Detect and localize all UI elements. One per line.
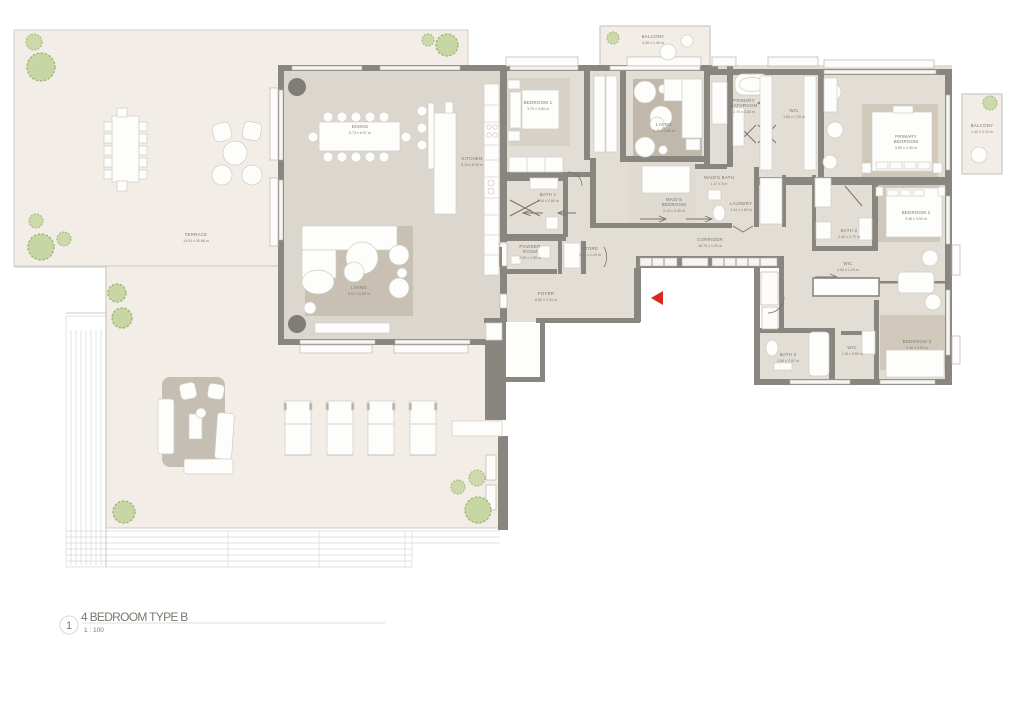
svg-text:STORE: STORE xyxy=(582,246,598,251)
svg-text:BALCONY: BALCONY xyxy=(642,34,665,39)
svg-text:WIC: WIC xyxy=(789,108,798,113)
svg-text:WIC: WIC xyxy=(843,261,852,266)
svg-text:TERRACE: TERRACE xyxy=(185,232,208,237)
svg-text:LIVING: LIVING xyxy=(656,122,672,127)
svg-text:3.60 x 1.24 m: 3.60 x 1.24 m xyxy=(837,268,859,272)
svg-text:1 : 100: 1 : 100 xyxy=(84,627,104,634)
svg-text:ROOM: ROOM xyxy=(523,249,538,254)
svg-text:5.50 x 4.40 m: 5.50 x 4.40 m xyxy=(895,146,917,150)
svg-text:BATH 2: BATH 2 xyxy=(841,228,858,233)
svg-text:KITCHEN: KITCHEN xyxy=(461,156,482,161)
svg-text:2.84 x 2.62 m: 2.84 x 2.62 m xyxy=(777,359,799,363)
svg-text:WIC: WIC xyxy=(847,345,856,350)
svg-text:4 BEDROOM TYPE B: 4 BEDROOM TYPE B xyxy=(81,610,188,624)
svg-text:3.70 x 3.50 m: 3.70 x 3.50 m xyxy=(527,107,549,111)
svg-text:LAUNDRY: LAUNDRY xyxy=(730,201,753,206)
svg-text:DINING: DINING xyxy=(352,124,369,129)
svg-text:1.47 x 3 m: 1.47 x 3 m xyxy=(711,182,728,186)
svg-text:1.15 x 3.80 m: 1.15 x 3.80 m xyxy=(841,352,863,356)
svg-text:2.70 x 3.80 m: 2.70 x 3.80 m xyxy=(733,110,755,114)
svg-text:4.29 x 3.80 m: 4.29 x 3.80 m xyxy=(653,129,675,133)
svg-text:2.46 x 2.70 m: 2.46 x 2.70 m xyxy=(838,235,860,239)
svg-text:2.35 x 1.80 m: 2.35 x 1.80 m xyxy=(519,256,541,260)
svg-text:BEDROOM: BEDROOM xyxy=(662,202,687,207)
svg-text:LIVING: LIVING xyxy=(351,285,367,290)
svg-text:4.06 x 1.45 m: 4.06 x 1.45 m xyxy=(642,41,664,45)
svg-text:14.91 x 20.66 m: 14.91 x 20.66 m xyxy=(183,239,209,243)
svg-text:16.79 x 1.20 m: 16.79 x 1.20 m xyxy=(698,244,722,248)
svg-text:1.66 x 1.20 m: 1.66 x 1.20 m xyxy=(579,253,601,257)
svg-text:2.13 x 3.35 m: 2.13 x 3.35 m xyxy=(663,209,685,213)
svg-text:FOYER: FOYER xyxy=(538,291,554,296)
svg-text:BATHROOM: BATHROOM xyxy=(730,103,757,108)
svg-text:MAID'S BATH: MAID'S BATH xyxy=(704,175,734,180)
svg-text:1.34 x 1.80 m: 1.34 x 1.80 m xyxy=(730,208,752,212)
svg-text:3.74 x 8.35 m: 3.74 x 8.35 m xyxy=(461,163,483,167)
svg-text:5.97 x 6.00 m: 5.97 x 6.00 m xyxy=(348,292,370,296)
svg-text:5.73 x 6.97 m: 5.73 x 6.97 m xyxy=(349,131,371,135)
svg-text:2.16 x 2.50 m: 2.16 x 2.50 m xyxy=(537,199,559,203)
svg-text:6.82 x 1.54 m: 6.82 x 1.54 m xyxy=(535,298,557,302)
svg-text:1.80 x 7.20 m: 1.80 x 7.20 m xyxy=(783,115,805,119)
svg-text:BATH 1: BATH 1 xyxy=(540,192,557,197)
svg-text:BEDROOM 3: BEDROOM 3 xyxy=(903,339,932,344)
svg-text:BALCONY: BALCONY xyxy=(971,123,994,128)
svg-text:1.42 x 3.24 m: 1.42 x 3.24 m xyxy=(971,130,993,134)
svg-text:3.46 x 3.93 m: 3.46 x 3.93 m xyxy=(905,217,927,221)
svg-text:1: 1 xyxy=(66,620,72,632)
svg-text:BEDROOM 2: BEDROOM 2 xyxy=(902,210,931,215)
svg-text:BATH 3: BATH 3 xyxy=(780,352,797,357)
svg-text:CORRIDOR: CORRIDOR xyxy=(697,237,723,242)
svg-text:BEDROOM 1: BEDROOM 1 xyxy=(524,100,553,105)
svg-text:3.46 x 3.93 m: 3.46 x 3.93 m xyxy=(906,346,928,350)
svg-text:BEDROOM: BEDROOM xyxy=(894,139,919,144)
